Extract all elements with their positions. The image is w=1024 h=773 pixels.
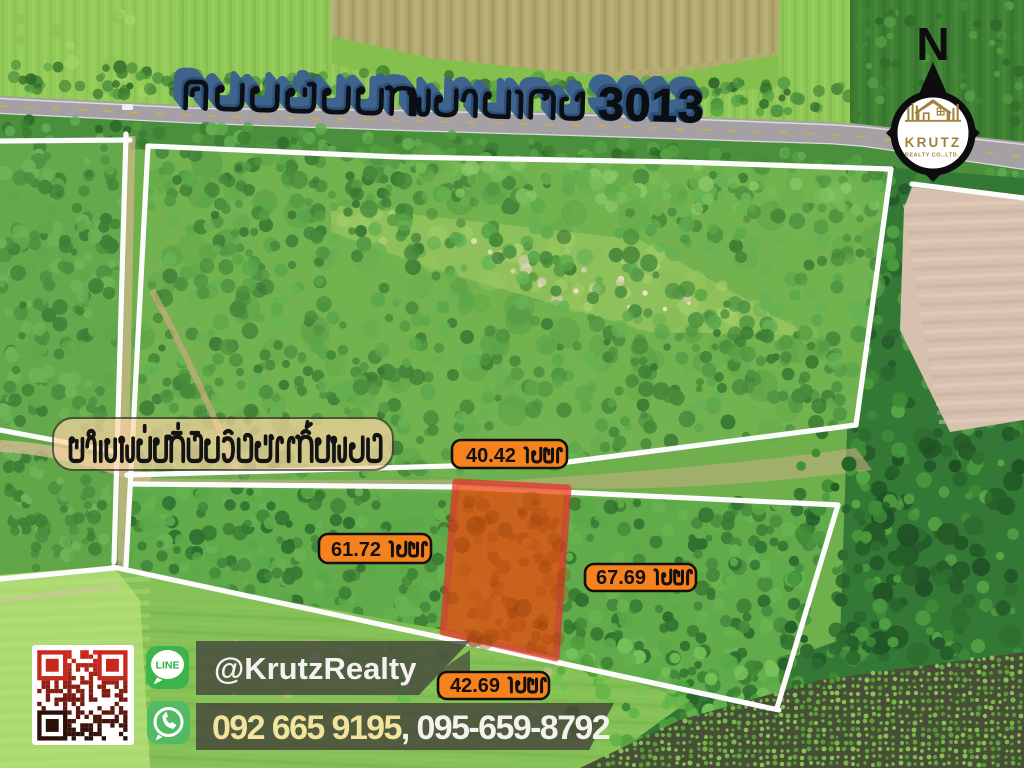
- svg-text:LINE: LINE: [156, 660, 180, 672]
- svg-text:42.69: 42.69: [450, 675, 500, 697]
- svg-text:67.69: 67.69: [596, 567, 646, 589]
- svg-text:REALTY CO.,LTD.: REALTY CO.,LTD.: [905, 153, 959, 159]
- svg-text:40.42: 40.42: [466, 445, 516, 467]
- svg-text:@KrutzRealty: @KrutzRealty: [214, 651, 417, 686]
- svg-text:3013: 3013: [598, 77, 706, 132]
- svg-text:61.72: 61.72: [331, 539, 381, 561]
- svg-text:KRUTZ: KRUTZ: [905, 135, 962, 150]
- svg-text:092 665 9195, 095-659-8792: 092 665 9195, 095-659-8792: [212, 709, 610, 747]
